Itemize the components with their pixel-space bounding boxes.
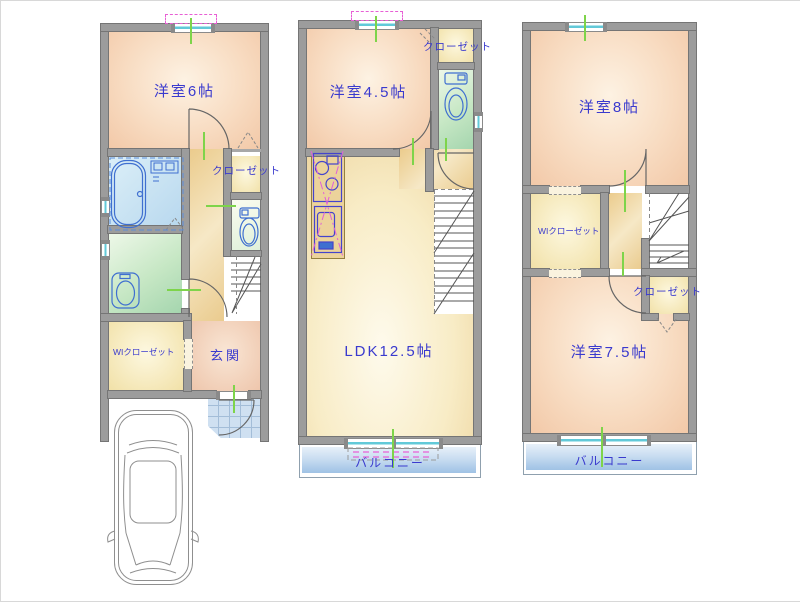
opening-tick <box>622 252 624 276</box>
bathroom-fixtures-1f <box>110 158 183 230</box>
room-label-closet-1f: クローゼット <box>212 163 281 178</box>
opening-tick <box>233 385 235 413</box>
room-label-entrance: 玄関 <box>210 345 242 364</box>
floor-plan-canvas: 洋室6帖 クローゼット WIクローゼット 玄関 洋室4.5帖 クローゼット LD… <box>0 0 800 602</box>
opening-tick <box>445 138 447 161</box>
stove-icon <box>314 154 342 202</box>
door-washroom-1f <box>189 279 227 317</box>
folding-door-closet-3f <box>657 318 677 332</box>
room-label-bedroom75: 洋室7.5帖 <box>530 341 689 362</box>
kitchen-fixtures-2f <box>311 151 343 257</box>
door-entrance-1f <box>219 400 254 435</box>
washbasin-icon <box>112 273 139 308</box>
room-label-bedroom6: 洋室6帖 <box>108 80 261 101</box>
stairs-lines-3f <box>649 193 689 263</box>
room-label-closet-2f: クローゼット <box>423 39 492 54</box>
door-bedroom6-1f <box>189 109 229 149</box>
kitchen-counter-crossmark <box>311 151 343 257</box>
room-label-wic-1f: WIクローゼット <box>113 346 174 358</box>
opening-tick <box>412 138 414 165</box>
stairs-lines-1f <box>231 256 261 314</box>
kitchen-sink-icon <box>315 207 342 253</box>
room-label-balcony-2f: バルコニー <box>302 454 478 471</box>
opening-tick <box>624 170 626 212</box>
room-label-bedroom45: 洋室4.5帖 <box>306 81 431 102</box>
opening-tick <box>375 16 377 42</box>
toilet-icon-2f <box>445 73 467 120</box>
room-label-closet-3f: クローゼット <box>633 284 702 299</box>
opening-tick <box>206 205 236 207</box>
room-label-wic-3f: WIクローゼット <box>538 225 599 237</box>
unit-bath-outline <box>110 158 183 230</box>
opening-tick <box>203 132 205 160</box>
opening-tick <box>167 289 201 291</box>
folding-door-bathroom-1f <box>166 218 184 230</box>
opening-tick <box>584 15 586 41</box>
car-icon <box>108 411 199 585</box>
bath-counter-icon <box>151 161 178 181</box>
toilet-icon-1f <box>240 208 259 246</box>
door-toilet-2f <box>438 153 474 189</box>
room-label-balcony-3f: バルコニー <box>526 452 693 469</box>
stairs-lines-2f <box>434 190 474 315</box>
door-bedroom8-3f <box>609 149 646 186</box>
bathtub-icon <box>112 161 146 228</box>
room-label-ldk: LDK12.5帖 <box>309 340 469 361</box>
room-label-bedroom8: 洋室8帖 <box>530 96 689 117</box>
overhang-dashed-line <box>351 11 403 21</box>
opening-tick <box>190 18 192 44</box>
folding-door-closet-1f <box>238 132 258 148</box>
door-arcs <box>189 109 646 435</box>
